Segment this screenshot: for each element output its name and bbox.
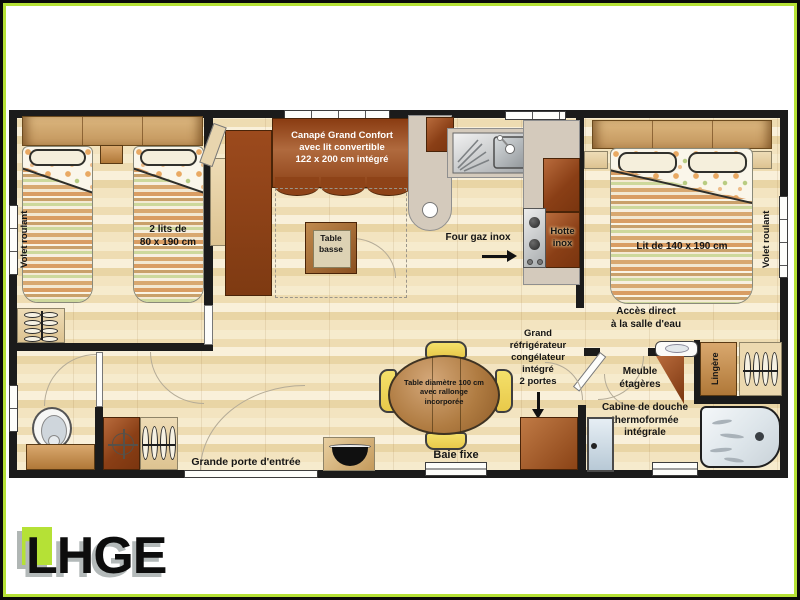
wall-bedroom1-bottom — [9, 343, 213, 351]
hanger-icon — [24, 312, 41, 318]
hanger-icon — [753, 352, 760, 386]
wall-living-right-bottom — [578, 405, 586, 470]
label-double-bed: Lit de 140 x 190 cm — [628, 241, 736, 254]
label-baie-fixe: Baie fixe — [424, 449, 488, 463]
hanger-icon — [169, 426, 176, 460]
washbasin — [655, 341, 698, 357]
water-wave-icon — [710, 447, 732, 453]
hanger-icon — [771, 352, 778, 386]
hanger-icon — [160, 426, 167, 460]
water-wave-icon — [720, 433, 744, 439]
wall-right — [780, 110, 788, 478]
gas-stove — [523, 208, 546, 268]
wall-lingere-bottom — [694, 396, 788, 404]
wardrobe-rod — [743, 370, 778, 372]
wardrobe-rod — [143, 444, 175, 446]
knob-icon — [537, 259, 543, 265]
pillow — [688, 152, 747, 173]
logo-text: LHGE — [26, 530, 166, 582]
headboard-bedroom1 — [22, 116, 203, 146]
door-wc — [96, 352, 103, 407]
water-wave-icon — [712, 419, 732, 426]
arrow-down-icon — [537, 392, 540, 410]
hanger-icon — [24, 336, 41, 342]
label-linen: Lingère — [710, 344, 726, 394]
window-wc — [9, 385, 18, 432]
shower-tray — [700, 406, 781, 468]
hanger-icon — [151, 426, 158, 460]
bowl — [332, 447, 368, 466]
shower-door — [587, 417, 614, 472]
hanger-icon — [24, 320, 41, 326]
label-sofa: Canapé Grand Confort avec lit convertibl… — [268, 130, 416, 166]
washbasin-bowl — [665, 344, 689, 353]
table-leg — [422, 202, 438, 218]
headboard-bedroom2 — [592, 120, 772, 149]
hall-cabinet — [103, 417, 140, 470]
wall-wc-right — [95, 407, 103, 470]
living-wardrobe — [225, 130, 272, 296]
door-bedroom1 — [204, 305, 213, 345]
hall-wardrobe — [140, 417, 178, 470]
burner-icon — [529, 217, 540, 228]
label-dining-table: Table diamètre 100 cm avec rallonge inco… — [394, 378, 494, 406]
door-handle — [591, 443, 597, 449]
entrance-door-threshold — [184, 470, 318, 478]
blanket — [611, 168, 753, 304]
floorplan-page: 2 lits de 80 x 190 cm Volet roulant Gran… — [0, 0, 800, 600]
divider — [41, 311, 43, 340]
water-wave-icon — [724, 457, 744, 464]
burner-icon — [529, 239, 540, 250]
hanger-icon — [41, 320, 58, 326]
wc-counter — [26, 444, 95, 470]
bath-wardrobe — [739, 342, 782, 396]
knob-icon — [527, 259, 533, 265]
window-volet-left — [9, 205, 18, 275]
label-coffee-table: Table basse — [305, 233, 357, 254]
pillow — [29, 149, 86, 166]
nightstand-left — [584, 151, 608, 169]
label-two-beds: 2 lits de 80 x 190 cm — [128, 224, 208, 249]
window-baie-fixe — [425, 462, 487, 476]
label-shelf-unit: Meuble étagères — [606, 366, 674, 391]
hanger-icon — [762, 352, 769, 386]
label-stove: Four gaz inox — [438, 232, 518, 245]
target-icon — [112, 433, 134, 455]
window-bath-bottom — [652, 462, 698, 476]
shower-drain — [755, 432, 764, 441]
hanger-icon — [744, 352, 751, 386]
pillow — [140, 149, 197, 166]
drawer-unit-bedroom1 — [17, 308, 65, 343]
hanger-icon — [41, 336, 58, 342]
kitchen-cabinet-a — [543, 158, 580, 212]
arrow-right-icon — [482, 255, 508, 258]
fridge — [520, 417, 578, 470]
nightstand-bedroom1 — [100, 145, 123, 164]
bowl-stand — [323, 437, 375, 471]
hanger-icon — [41, 312, 58, 318]
window-top-kitchen — [505, 111, 566, 120]
hanger-icon — [142, 426, 149, 460]
label-volet-left: Volet roulant — [19, 200, 35, 278]
pillow — [618, 152, 677, 173]
label-entrance-door: Grande porte d'entrée — [186, 456, 306, 469]
label-hood: Hotte inox — [543, 226, 582, 250]
hanger-icon — [41, 328, 58, 334]
hanger-icon — [24, 328, 41, 334]
label-volet-right: Volet roulant — [761, 200, 777, 278]
window-volet-right — [779, 196, 788, 278]
label-access: Accès direct à la salle d'eau — [592, 306, 700, 331]
bed-double — [610, 148, 753, 304]
